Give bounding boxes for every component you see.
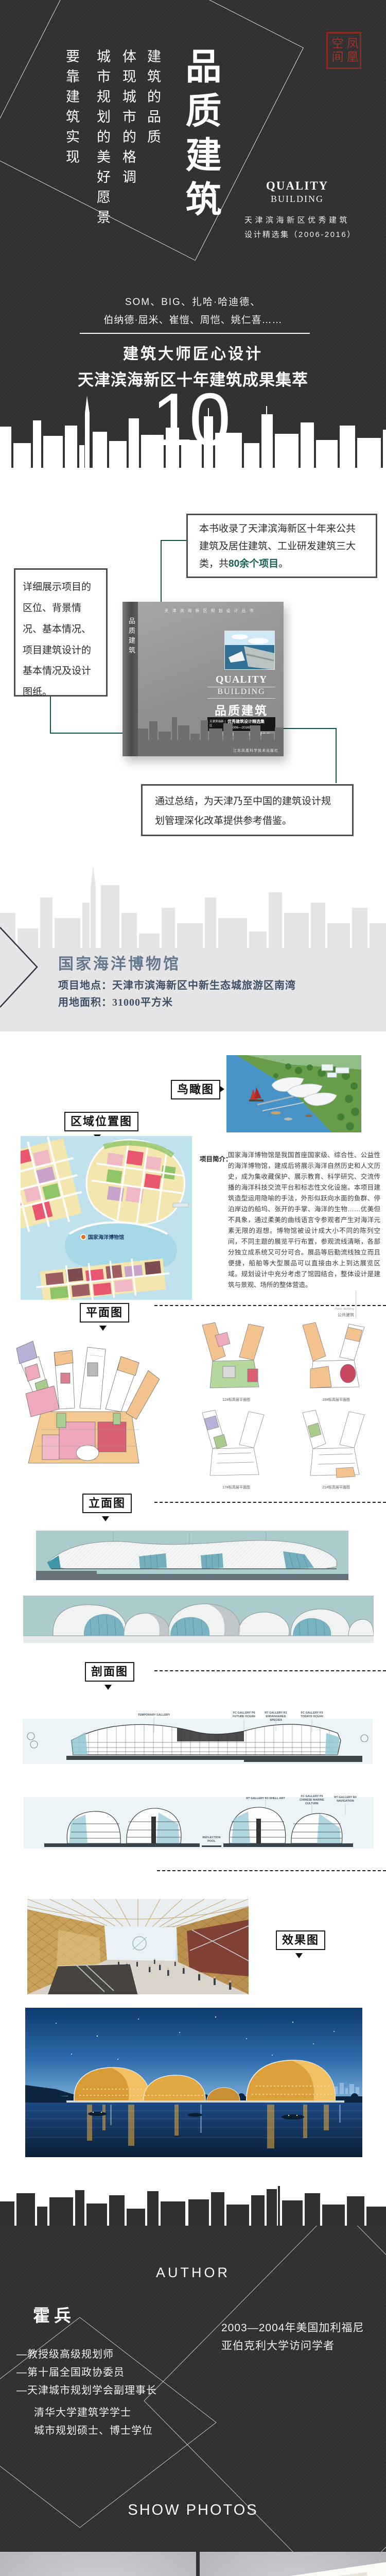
render-dash-divider	[157, 1870, 386, 1871]
section2-label-culture: CULTURE	[305, 1802, 319, 1805]
book-cover-footer: 江苏凤凰科学技术出版社	[138, 741, 284, 756]
plan-arrow-icon	[99, 1326, 107, 1331]
page-title: 品质建筑	[174, 47, 226, 225]
callout-summary: 通过总结，为天津乃至中国的建筑设计规划管理深化改革提供参考借鉴。	[141, 784, 354, 836]
section2-label-reflection: REFLECTION	[202, 1836, 220, 1839]
book-series-title: 天津滨海新区规划设计丛书	[138, 608, 284, 614]
title-en-building: BUILDING	[234, 194, 360, 205]
promo-page: 品质建筑 建筑的品质 体现城市的格调 城市规划的美好愿景 要靠建筑实现 空间 凤…	[0, 0, 386, 2576]
callout-detail: 详细展示项目的区位、背景情况、基本情况、项目建筑设计的基本情况及设计图纸。	[14, 568, 108, 697]
project-intro-text: 国家海洋博物馆是我国首座国家级、综合性、公益性的海洋博物馆，建成后将展示海洋自然…	[228, 1150, 380, 1291]
section-drawing-2: RT GALLERY R3 SHELL ART FC GALLERY P5 CH…	[24, 1792, 374, 1857]
section1-label-future: FUTURE OCEAN	[233, 1715, 255, 1718]
title-en-quality: QUALITY	[234, 179, 360, 193]
floor-plan-small-3	[187, 1408, 286, 1484]
section1-label-todays: TODAYS OCEAN	[301, 1715, 323, 1718]
author-title-1-text: 教授级高级规划师	[27, 2349, 114, 2360]
aerial-view-image	[226, 1055, 361, 1132]
plan-caption-4: 21#标高层平面图	[287, 1485, 385, 1490]
interior-render-image	[27, 1899, 249, 1994]
night-render-image	[25, 2008, 362, 2157]
book-spine: 品质建筑	[122, 602, 138, 756]
location-map-image: 国家海洋博物馆	[21, 1136, 192, 1300]
project-location-label: 项目地点：	[58, 980, 112, 991]
project-intro-label: 项目简介：	[200, 1154, 232, 1163]
section2-label-navigation: NAVIGATION	[337, 1800, 354, 1803]
chevron-icon	[0, 925, 46, 1012]
author-edu-2: 城市规划硕士、博士学位	[34, 2422, 153, 2437]
subtitle-cn-1: 天津滨海新区优秀建筑	[244, 214, 350, 225]
book-cover-photo	[224, 631, 275, 670]
floor-plan-small-2	[287, 1320, 385, 1396]
section1-label-r1: RT GALLERY R1	[265, 1711, 287, 1715]
floor-plan-small-4	[287, 1408, 385, 1484]
slogan-2: 体现城市的格调	[118, 49, 138, 190]
section1-label-p6: FC GALLERY P6	[233, 1711, 255, 1715]
seal-text-right: 凤凰	[345, 37, 358, 64]
section1-label-species: SPECIES	[270, 1719, 282, 1722]
book-photo-closed: QUALITY BUILDING 品质建筑	[0, 2552, 196, 2576]
section1-label-endangered: ENDANGERED	[266, 1715, 286, 1718]
dash-icon: —	[16, 2349, 27, 2360]
author-section: AUTHOR 霍兵 —教授级高级规划师 —第十届全国政协委员 —天津城市规划学会…	[0, 2226, 386, 2576]
plan-dash-divider	[154, 1305, 386, 1306]
author-heading: AUTHOR	[0, 2265, 386, 2281]
plan-label: 平面图	[80, 1303, 129, 1323]
section-label: 剖面图	[85, 1662, 134, 1682]
section2-label-p5: FC GALLERY P5	[301, 1795, 323, 1798]
author-title-3-text: 天津城市规划学会副理事长	[27, 2385, 157, 2396]
book-render: 品质建筑 天津滨海新区规划设计丛书 QUALITY BUILDING 品质建筑 …	[122, 602, 284, 756]
project-title: 国家海洋博物馆	[58, 951, 181, 974]
book-cover: 天津滨海新区规划设计丛书 QUALITY BUILDING 品质建筑 天津滨海新…	[138, 602, 284, 756]
render-arrow-icon	[295, 1953, 303, 1958]
author-name: 霍兵	[33, 2302, 75, 2327]
book-photo-open-side	[200, 2552, 386, 2576]
book-title-en2: BUILDING	[207, 687, 275, 699]
section2-label-r4: RT GALLERY R4	[334, 1796, 357, 1799]
slogan-3: 城市规划的美好愿景	[93, 49, 113, 230]
author-title-2-text: 第十届全国政协委员	[27, 2367, 125, 2378]
dash-icon: —	[16, 2367, 27, 2378]
author-edu-1: 清华大学建筑学学士	[34, 2404, 131, 2419]
dash-icon: —	[16, 2385, 27, 2396]
section2-label-shellart: RT GALLERY R3 SHELL ART	[246, 1797, 285, 1800]
headline-1: 建筑大师匠心设计	[0, 341, 386, 364]
elevation-image-2	[23, 1596, 374, 1643]
section-drawing-1: TEMPORARY GALLERY FC GALLERY P6 FUTURE O…	[23, 1710, 373, 1770]
floor-plan-main	[10, 1332, 160, 1466]
section2-label-marine: CHINESE MARINE	[300, 1799, 324, 1802]
category-cn: 公共建筑	[309, 1312, 354, 1318]
location-map-label: 区域位置图	[64, 1112, 138, 1131]
section-arrow-icon	[104, 1685, 112, 1690]
header-section: 品质建筑 建筑的品质 体现城市的格调 城市规划的美好愿景 要靠建筑实现 空间 凤…	[0, 0, 386, 468]
category-en: Public Building	[309, 1308, 354, 1311]
book-title-en1: QUALITY	[207, 674, 275, 687]
project-area-label: 用地面积：	[58, 997, 112, 1008]
author-visiting-1: 2003—2004年美国加利福尼	[221, 2319, 364, 2335]
author-title-3: —天津城市规划学会副理事长	[16, 2382, 157, 2397]
section1-label-p3: FC GALLERY P3	[301, 1711, 323, 1715]
book-cover-skyline	[138, 711, 284, 742]
plan-caption-3: 17#标高层平面图	[187, 1485, 286, 1490]
city-skyline-header	[0, 396, 386, 468]
project-area-value: 31000平方米	[112, 997, 173, 1008]
divider-line	[80, 333, 310, 334]
plan-vertical-rule	[356, 1291, 356, 1317]
section2-label-pool: POOL	[207, 1840, 216, 1843]
callout-count-tail: 。	[278, 558, 288, 569]
project-area: 用地面积：31000平方米	[58, 994, 173, 1009]
callout-count-highlight: 80余个项目	[229, 558, 278, 569]
gallery-heading: SHOW PHOTOS	[0, 2502, 386, 2519]
elevation-image-1	[36, 1531, 348, 1583]
floor-plan-small-1	[187, 1320, 286, 1396]
callout-projects-count: 本书收录了天津滨海新区十年来公共建筑及居住建筑、工业研发建筑三大类，共80余个项…	[186, 514, 377, 578]
slogan-4: 要靠建筑实现	[62, 49, 82, 170]
city-skyline-author	[0, 2186, 386, 2226]
book-spine-title: 品质建筑	[127, 617, 136, 656]
plan-caption-2: 19#标高层平面图	[287, 1397, 385, 1402]
architects-line-1: SOM、BIG、扎哈·哈迪德、	[0, 294, 386, 308]
aerial-view-label: 鸟瞰图	[171, 1080, 220, 1099]
slogan-1: 建筑的品质	[143, 49, 163, 149]
author-title-2: —第十届全国政协委员	[16, 2364, 125, 2379]
plan-caption-1: 12#标高层平面图	[187, 1397, 286, 1402]
elevation-dash-divider	[154, 1502, 386, 1503]
elevation-arrow-icon	[102, 1516, 109, 1521]
publisher-seal: 空间 凤凰	[326, 32, 361, 69]
project-location: 项目地点：天津市滨海新区中新生态城旅游区南湾	[58, 977, 296, 992]
aerial-arrow-icon	[219, 1086, 224, 1093]
project-location-value: 天津市滨海新区中新生态城旅游区南湾	[112, 980, 296, 991]
author-visiting-2: 亚伯克利大学访问学者	[221, 2337, 335, 2353]
author-title-1: —教授级高级规划师	[16, 2346, 114, 2361]
section1-label-temporary: TEMPORARY GALLERY	[138, 1714, 170, 1717]
section-dash-divider	[154, 1670, 386, 1671]
seal-text-left: 空间	[330, 37, 343, 64]
map-marker-label: 国家海洋博物馆	[88, 1234, 124, 1241]
architects-line-2: 伯纳德·屈米、崔愷、周恺、姚仁喜……	[0, 312, 386, 326]
book-publisher: 江苏凤凰科学技术出版社	[233, 748, 278, 753]
render-label: 效果图	[276, 1930, 325, 1950]
subtitle-cn-2: 设计精选集（2006-2016）	[244, 229, 356, 240]
elevation-label: 立面图	[82, 1494, 132, 1513]
